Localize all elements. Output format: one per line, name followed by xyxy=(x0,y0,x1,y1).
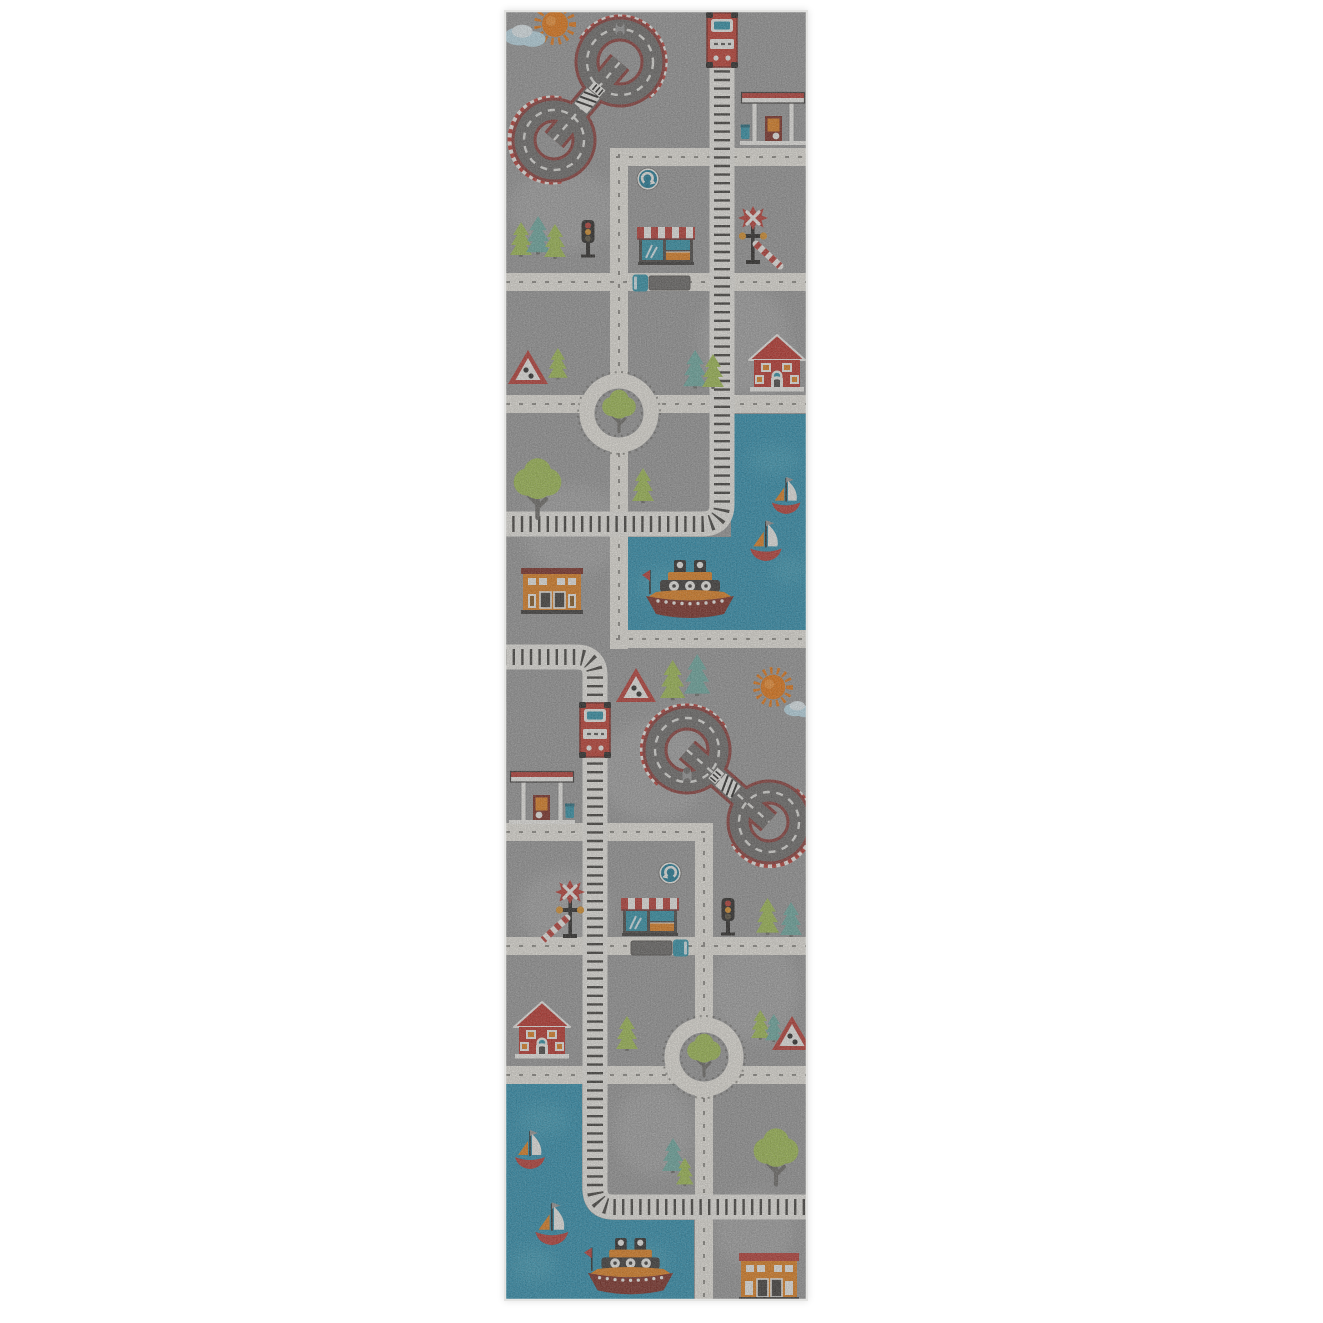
play-rug-image xyxy=(504,10,808,1301)
rug-texture-light xyxy=(504,10,808,1301)
product-photo-background xyxy=(0,0,1323,1323)
